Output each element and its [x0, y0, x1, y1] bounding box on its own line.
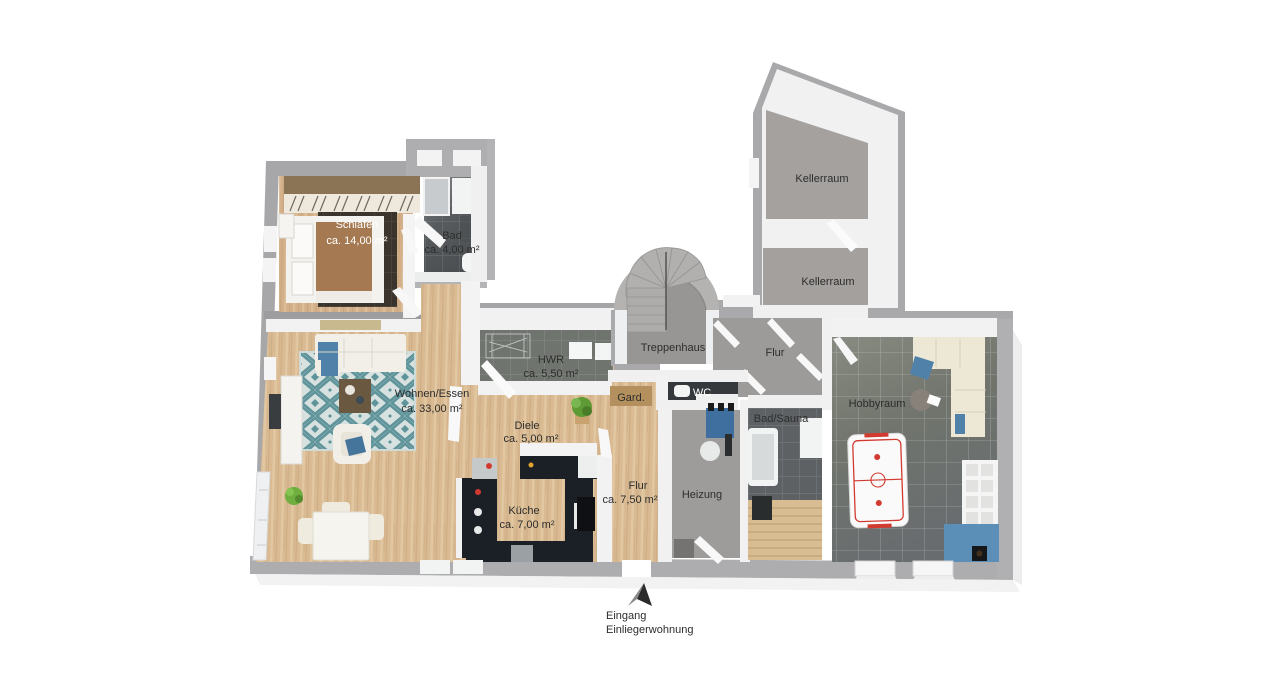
- svg-text:ca. 14,00 m²: ca. 14,00 m²: [326, 235, 387, 247]
- svg-text:ca. 4,00 m²: ca. 4,00 m²: [424, 244, 479, 256]
- svg-text:Treppenhaus: Treppenhaus: [641, 342, 706, 354]
- svg-text:Einliegerwohnung: Einliegerwohnung: [606, 624, 693, 636]
- svg-text:Heizung: Heizung: [682, 489, 722, 501]
- svg-text:Gard.: Gard.: [617, 392, 645, 404]
- svg-text:ca. 5,00 m²: ca. 5,00 m²: [503, 433, 558, 445]
- svg-text:Bad: Bad: [442, 230, 462, 242]
- svg-text:Kellerraum: Kellerraum: [795, 173, 848, 185]
- svg-text:Flur: Flur: [629, 480, 648, 492]
- svg-text:Wohnen/Essen: Wohnen/Essen: [395, 388, 469, 400]
- svg-text:HWR: HWR: [538, 354, 564, 366]
- svg-text:Kellerraum: Kellerraum: [801, 276, 854, 288]
- svg-text:Eingang: Eingang: [606, 610, 646, 622]
- svg-text:Schlafen: Schlafen: [336, 219, 379, 231]
- svg-text:ca. 33,00 m²: ca. 33,00 m²: [401, 403, 462, 415]
- svg-text:Küche: Küche: [508, 505, 539, 517]
- svg-text:Hobbyraum: Hobbyraum: [849, 398, 906, 410]
- svg-text:ca. 7,00 m²: ca. 7,00 m²: [499, 519, 554, 531]
- svg-text:ca. 7,50 m²: ca. 7,50 m²: [602, 494, 657, 506]
- svg-text:Flur: Flur: [766, 347, 785, 359]
- svg-text:Diele: Diele: [514, 420, 539, 432]
- svg-text:ca. 5,50 m²: ca. 5,50 m²: [523, 368, 578, 380]
- svg-text:WC: WC: [693, 387, 711, 399]
- svg-text:Bad/Sauna: Bad/Sauna: [754, 413, 809, 425]
